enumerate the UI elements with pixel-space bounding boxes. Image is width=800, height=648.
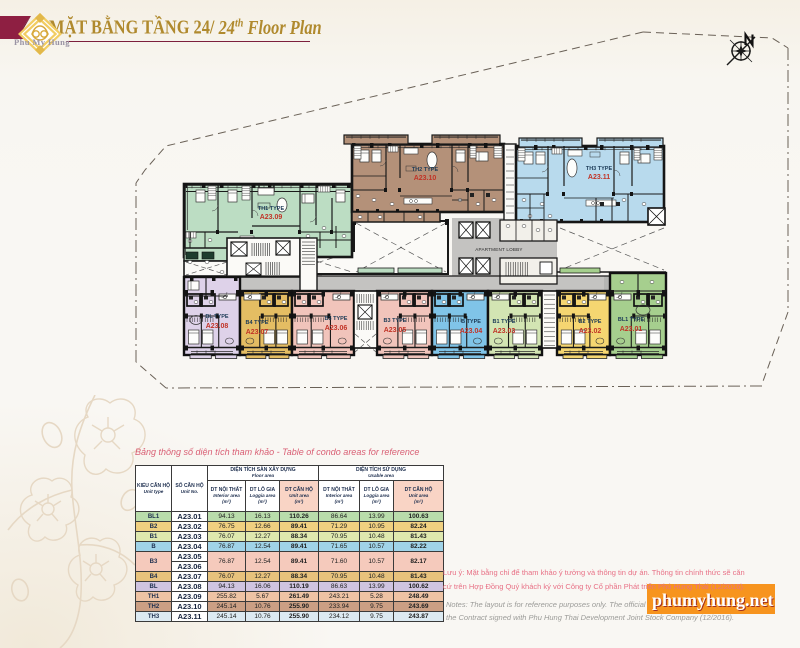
- svg-text:TH1 TYPE: TH1 TYPE: [258, 206, 285, 212]
- svg-text:B4 TYPE: B4 TYPE: [246, 320, 269, 326]
- svg-text:A23.02: A23.02: [579, 328, 602, 335]
- svg-text:B3 TYPE: B3 TYPE: [325, 316, 348, 322]
- svg-text:A23.03: A23.03: [493, 328, 516, 335]
- svg-text:A23.07: A23.07: [246, 329, 269, 336]
- svg-text:TH3 TYPE: TH3 TYPE: [586, 166, 613, 172]
- svg-text:B3 TYPE: B3 TYPE: [384, 318, 407, 324]
- svg-text:APARTMENT LOBBY: APARTMENT LOBBY: [475, 247, 522, 252]
- svg-text:A23.05: A23.05: [384, 327, 407, 334]
- svg-text:B1 TYPE: B1 TYPE: [493, 319, 516, 325]
- svg-text:A23.04: A23.04: [460, 328, 483, 335]
- svg-text:BL TYPE: BL TYPE: [205, 314, 228, 320]
- svg-text:B TYPE: B TYPE: [461, 319, 481, 325]
- svg-text:A23.11: A23.11: [588, 174, 610, 181]
- svg-text:A23.01: A23.01: [620, 326, 643, 333]
- svg-text:B2 TYPE: B2 TYPE: [579, 319, 602, 325]
- svg-text:BL1 TYPE: BL1 TYPE: [618, 317, 645, 323]
- svg-text:TH2 TYPE: TH2 TYPE: [412, 167, 439, 173]
- svg-text:A23.10: A23.10: [414, 175, 437, 182]
- svg-text:A23.06: A23.06: [325, 325, 348, 332]
- svg-text:A23.08: A23.08: [206, 323, 229, 330]
- svg-text:A23.09: A23.09: [260, 214, 283, 221]
